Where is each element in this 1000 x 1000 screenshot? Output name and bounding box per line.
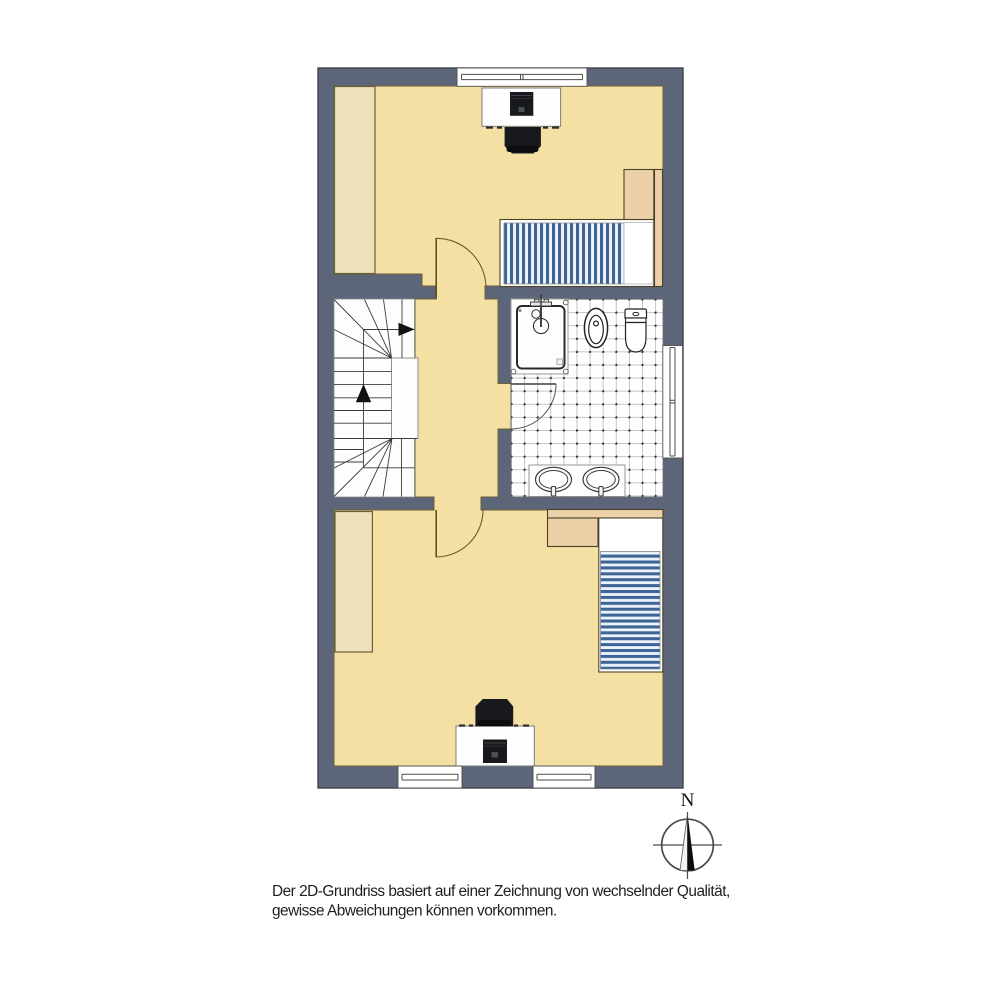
svg-text:Der 2D-Grundriss basiert auf e: Der 2D-Grundriss basiert auf einer Zeich… [272, 883, 730, 900]
svg-text:N: N [681, 790, 695, 811]
svg-text:gewisse Abweichungen können vo: gewisse Abweichungen können vorkommen. [272, 903, 557, 920]
